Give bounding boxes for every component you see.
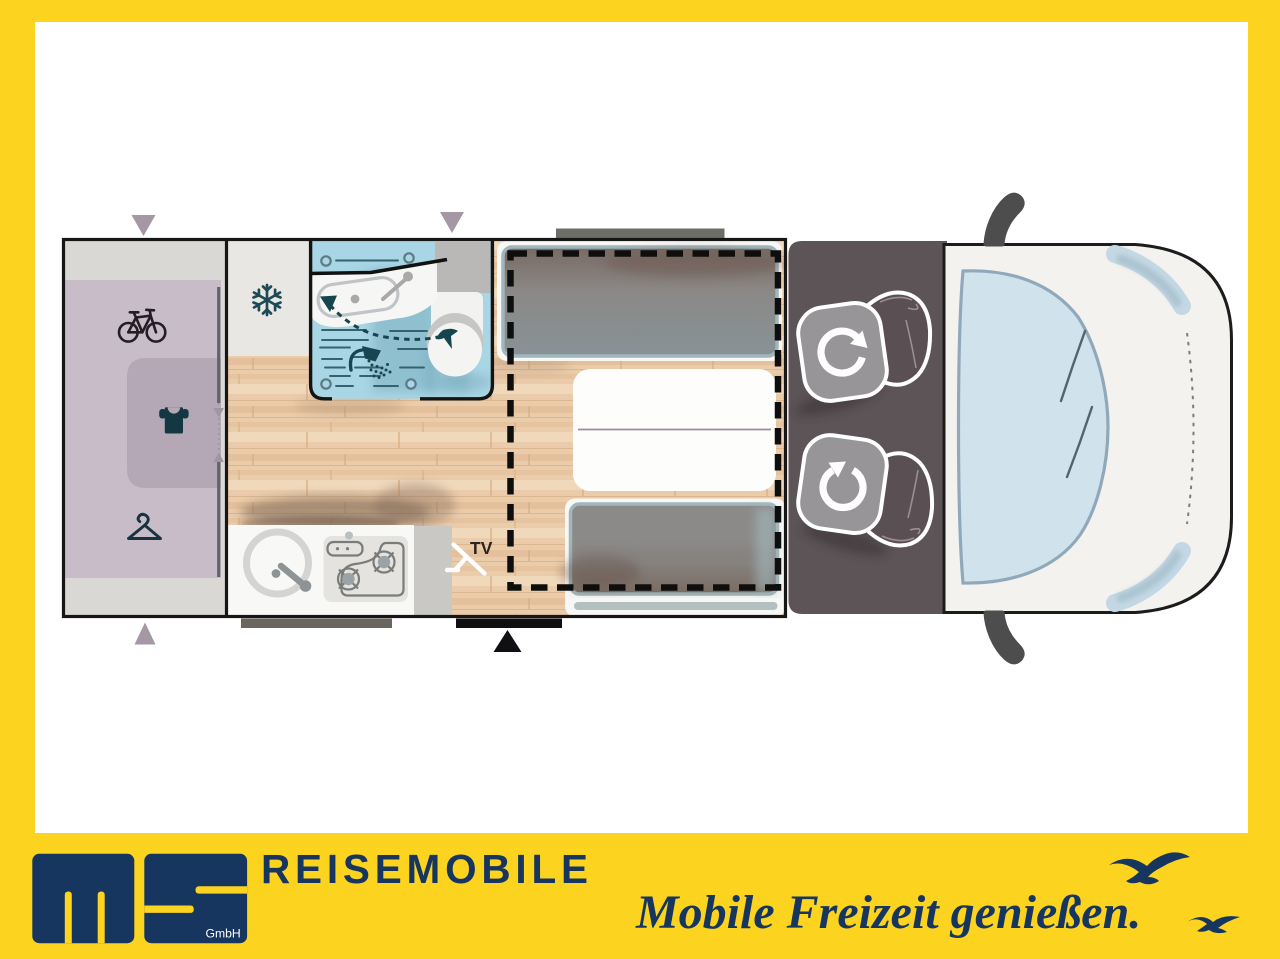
svg-text:REISEMOBILE: REISEMOBILE <box>261 846 593 892</box>
svg-text:Mobile Freizeit genießen.: Mobile Freizeit genießen. <box>635 886 1141 939</box>
svg-text:GmbH: GmbH <box>206 927 241 941</box>
svg-text:TV: TV <box>470 538 493 558</box>
